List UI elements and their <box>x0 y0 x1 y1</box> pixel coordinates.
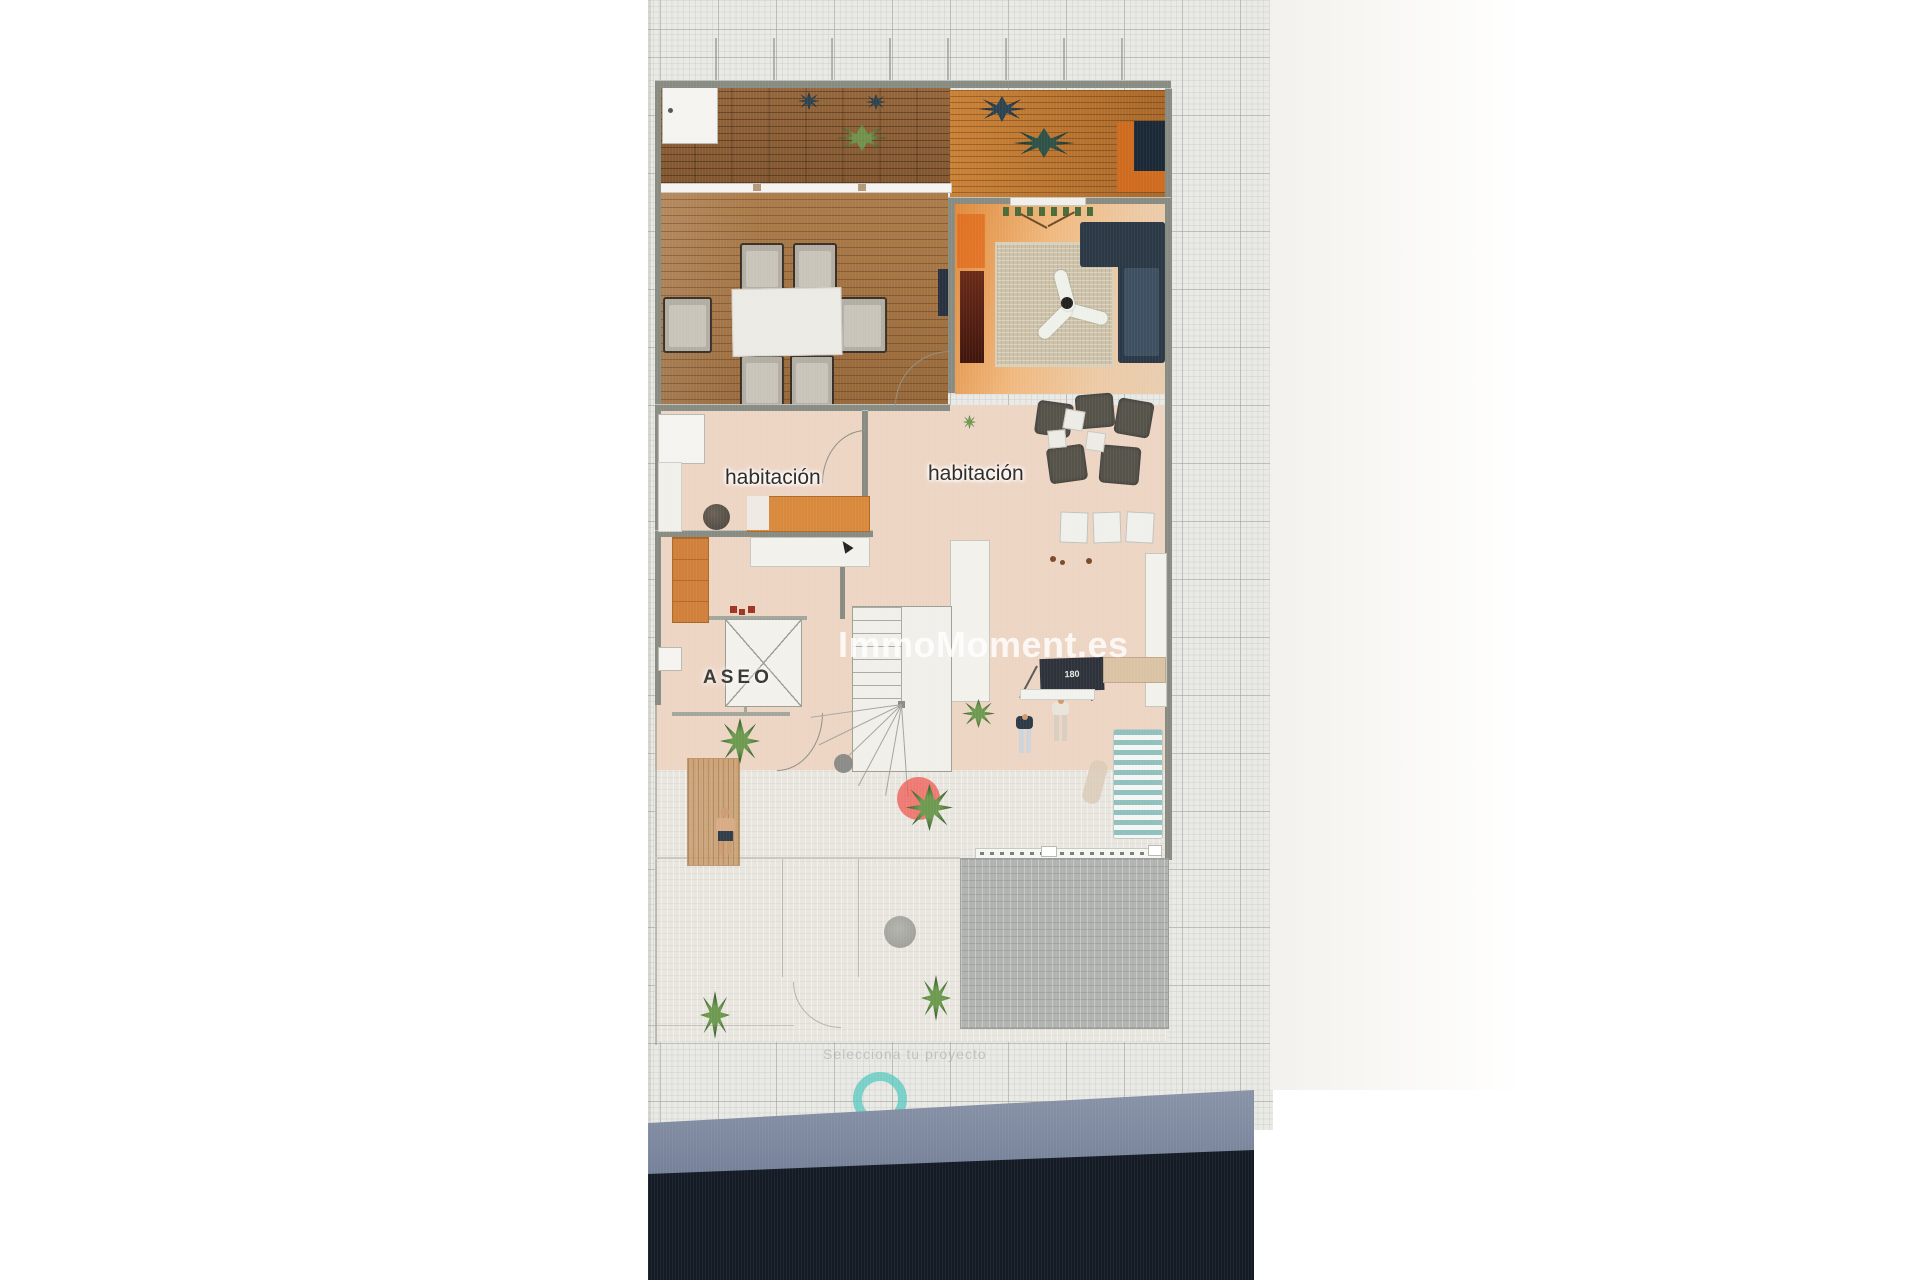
person-leg <box>1026 729 1031 753</box>
stove-burner <box>739 609 745 615</box>
shower-stall <box>725 619 802 707</box>
screen-glare-area <box>1270 0 1537 1090</box>
room-label-2: habitación <box>928 462 1024 486</box>
shelf <box>1020 689 1095 700</box>
watermark: ImmoMoment.es <box>838 624 1129 666</box>
wardrobe <box>658 414 705 464</box>
room-label-1: habitación <box>725 466 821 490</box>
garland-leaves <box>1003 207 1093 216</box>
pergola-knob <box>1041 846 1057 857</box>
wall-left <box>655 80 661 705</box>
bottle <box>1086 558 1092 564</box>
person-head <box>1022 714 1028 720</box>
fan-hub <box>1061 297 1073 309</box>
dining-chair <box>838 297 887 353</box>
person-leg <box>1062 715 1067 741</box>
monitor-bottom <box>648 1078 1254 1280</box>
person-shorts <box>718 831 733 841</box>
fence-line <box>858 859 859 977</box>
bar-stool <box>1125 511 1155 543</box>
sunlit-floor-patch <box>957 214 985 268</box>
dining-chair <box>740 355 784 409</box>
stove-burner <box>730 606 737 613</box>
faint-caption: Selecciona tu proyecto <box>823 1046 987 1062</box>
table-top <box>1047 429 1067 449</box>
kitchen-counter <box>750 537 870 567</box>
wall-cabinet <box>662 86 718 144</box>
tv-screen <box>1134 121 1167 171</box>
person-leg <box>727 841 731 855</box>
grid-tick <box>1063 38 1065 80</box>
bathroom-sink <box>658 647 682 671</box>
kitchen-island <box>950 540 990 702</box>
bottle <box>1060 560 1065 565</box>
beanbag <box>703 504 730 530</box>
wall-top <box>655 80 1171 88</box>
door-frame-notch <box>753 184 761 191</box>
table-top <box>1085 431 1106 452</box>
wall-counter <box>1145 553 1167 707</box>
door-frame-notch <box>858 184 866 191</box>
pergola-ticks <box>980 852 1157 855</box>
screenshot-stage: 180 habitación habitación ASEO ImmoMomen… <box>0 0 1920 1280</box>
sofa-seat-cushion <box>1124 268 1159 356</box>
garland-chandelier <box>1003 205 1093 231</box>
wall-aseo-bottom <box>672 712 790 716</box>
gray-marker <box>834 754 853 773</box>
fence-line <box>782 859 783 977</box>
grid-tick <box>947 38 949 80</box>
kitchen-cabinets <box>672 537 709 623</box>
grid-tick <box>889 38 891 80</box>
grid-tick <box>773 38 775 80</box>
closet-column <box>658 462 682 532</box>
grid-tick <box>831 38 833 80</box>
bottle <box>1050 556 1056 562</box>
person-head <box>721 808 729 816</box>
chair-dark <box>1098 444 1141 485</box>
stove-burner <box>748 606 755 613</box>
dining-table <box>731 287 842 357</box>
paver-patio <box>960 858 1169 1029</box>
grid-tick <box>715 38 717 80</box>
wood-deck-strip <box>687 758 740 866</box>
bar-stool <box>1059 512 1088 544</box>
dining-chair <box>793 243 837 293</box>
person-leg <box>719 841 723 855</box>
pergola-knob <box>1148 845 1162 856</box>
sign-text: 180 <box>1064 669 1079 680</box>
speaker <box>938 269 948 316</box>
tv-cabinet <box>960 271 984 363</box>
person-leg <box>1019 729 1024 753</box>
stone-circle <box>884 916 916 948</box>
dining-chair <box>663 297 712 353</box>
person-leg <box>1054 715 1059 741</box>
wall-left-lower <box>655 705 657 1045</box>
bed-pillow <box>747 496 769 530</box>
glass-panel <box>1010 197 1086 206</box>
grid-tick <box>1121 38 1123 80</box>
chair-dark <box>1113 397 1155 439</box>
cabinet-knob <box>668 108 673 113</box>
dining-chair <box>740 243 784 293</box>
monitor-photo: 180 habitación habitación ASEO ImmoMomen… <box>648 0 1537 1280</box>
striped-sun-lounger <box>1113 729 1163 839</box>
chair-dark <box>1046 444 1089 485</box>
bathroom-label: ASEO <box>703 667 773 689</box>
bar-stool <box>1092 512 1121 544</box>
table-top <box>1062 408 1085 431</box>
person-torso <box>716 818 735 832</box>
dining-chair <box>790 355 834 409</box>
grid-tick <box>1005 38 1007 80</box>
glass-sliding-door <box>658 183 952 193</box>
